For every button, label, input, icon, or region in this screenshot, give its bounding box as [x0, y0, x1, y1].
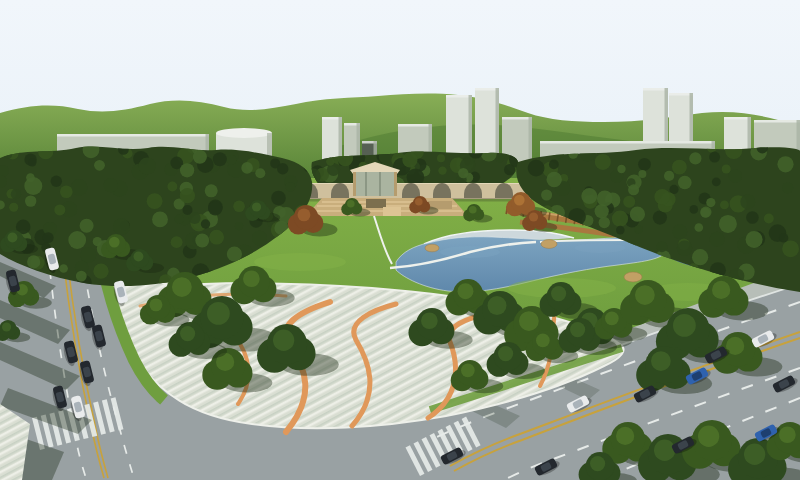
rock [624, 272, 642, 282]
park-aerial-render [0, 0, 800, 480]
building [475, 88, 499, 161]
park-render-stage [0, 0, 800, 480]
rock [541, 240, 557, 249]
pavilion-post-right [394, 172, 397, 196]
lawn-mound [254, 253, 346, 271]
building [446, 95, 472, 161]
pavilion-post-left [353, 172, 356, 196]
terrace-stair [383, 207, 401, 216]
terrace-doorway [366, 199, 386, 208]
rock [425, 244, 439, 252]
pavilion-body [353, 172, 397, 196]
water-reflection [575, 243, 625, 253]
